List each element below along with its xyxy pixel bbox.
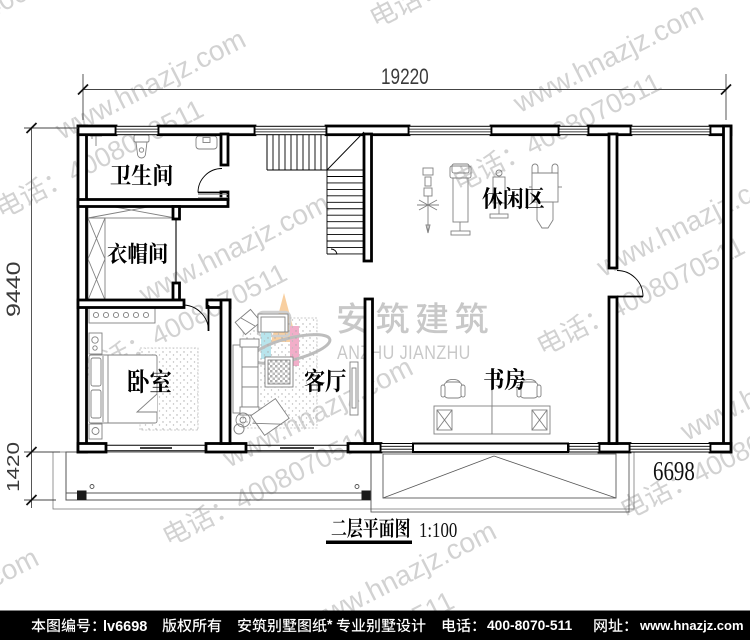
svg-text:400-8070-511: 400-8070-511 [487, 618, 572, 633]
svg-text:www.hnazjz.com: www.hnazjz.com [639, 618, 744, 633]
svg-text:*: * [327, 616, 333, 632]
svg-text:19220: 19220 [381, 65, 429, 90]
svg-text:9440: 9440 [3, 261, 25, 317]
svg-text:1420: 1420 [4, 442, 23, 492]
svg-text:lv6698: lv6698 [103, 619, 147, 635]
svg-text:6698: 6698 [653, 456, 695, 486]
svg-text:1:100: 1:100 [419, 519, 457, 542]
svg-text:ANZHU JIANZHU: ANZHU JIANZHU [337, 342, 471, 364]
